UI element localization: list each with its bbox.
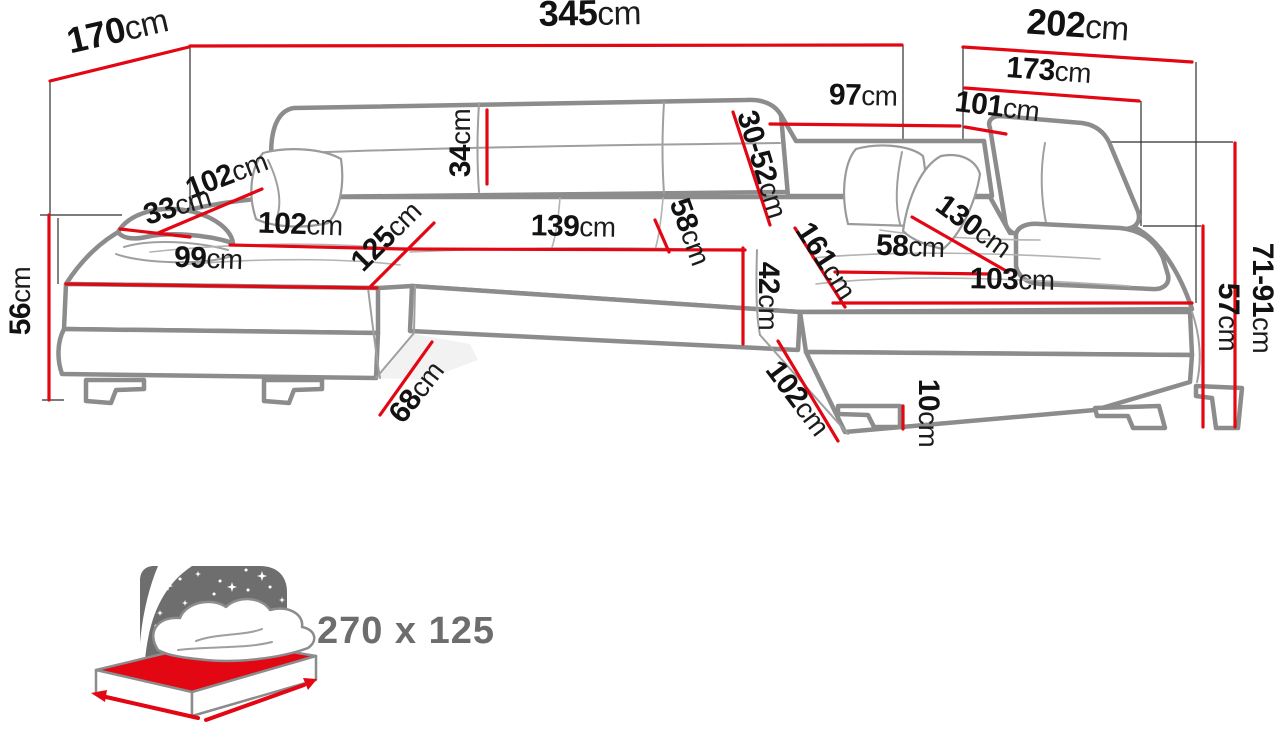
dim-unit: cm <box>445 109 476 145</box>
dim-unit: cm <box>579 211 616 243</box>
dim-unit: cm <box>753 294 784 330</box>
dim-label-backrest-cushion-height: 34cm <box>444 109 477 178</box>
dim-label-right-seat-depth: 58cm <box>875 229 945 264</box>
dim-unit: cm <box>913 411 944 447</box>
dim-unit: cm <box>908 231 945 263</box>
dim-value: 97 <box>829 78 862 112</box>
dim-value: 34 <box>444 144 477 177</box>
dim-line-back-section-width <box>770 124 960 126</box>
dim-unit: cm <box>1018 264 1055 296</box>
dim-label-leg-height: 10cm <box>912 379 945 448</box>
dim-unit: cm <box>206 243 243 275</box>
right-chaise-front <box>800 312 1192 355</box>
dim-value: 10 <box>912 379 945 411</box>
dim-label-seat-height: 42cm <box>752 262 785 331</box>
width-arrow-head-icon <box>91 690 107 702</box>
dim-label-left-side-height: 56cm <box>4 267 37 336</box>
dim-line-total-width <box>190 45 902 46</box>
foot <box>86 380 144 403</box>
left-chaise-front <box>64 284 378 333</box>
dim-unit: cm <box>1001 92 1041 127</box>
dim-value: 139 <box>531 209 580 243</box>
dim-unit: cm <box>1084 9 1130 49</box>
dim-label-back-section-width: 97cm <box>829 78 898 112</box>
left-chaise-base <box>58 329 378 378</box>
sleeping-area-icon: 270 x 125 <box>91 566 495 720</box>
dim-label-back-height-range: 71-91cm <box>1246 243 1279 353</box>
dim-unit: cm <box>1213 315 1244 351</box>
dim-unit: cm <box>1247 317 1278 353</box>
bed-icon <box>91 599 317 720</box>
dim-unit: cm <box>861 80 898 112</box>
dim-unit: cm <box>1054 55 1092 88</box>
sofa-backrest <box>271 100 790 197</box>
dim-label-right-inner-depth: 173cm <box>1005 51 1092 90</box>
dim-label-left-chaise-front-width: 99cm <box>173 241 243 276</box>
dim-label-middle-seat-width: 139cm <box>531 209 616 243</box>
dim-value: 99 <box>173 241 207 275</box>
dim-label-left-seat-length: 102cm <box>257 207 343 243</box>
dim-label-right-chaise-front-width: 103cm <box>970 262 1055 296</box>
dim-value: 202 <box>1025 1 1086 46</box>
dimension-diagram: 170cm 345cm 202cm 173cm 97cm 101cm 34cm … <box>0 0 1280 729</box>
diagram-canvas: 170cm 345cm 202cm 173cm 97cm 101cm 34cm … <box>0 0 1280 729</box>
foot <box>264 380 322 403</box>
dim-value: 345 <box>538 0 598 34</box>
dim-value: 42 <box>752 262 785 294</box>
dim-value: 58 <box>875 229 909 263</box>
dim-label-total-width: 345cm <box>538 0 641 34</box>
dim-unit: cm <box>306 209 343 241</box>
dim-line-right-seat-depth <box>835 272 990 274</box>
dim-unit: cm <box>121 2 172 48</box>
dim-unit: cm <box>597 0 641 33</box>
dim-value: 57 <box>1212 283 1245 315</box>
dim-value: 170 <box>63 8 129 61</box>
dim-label-right-side-depth: 202cm <box>1025 1 1130 49</box>
dim-value: 71-91 <box>1246 243 1279 317</box>
dim-value: 173 <box>1005 51 1056 87</box>
right-headrest <box>989 116 1139 234</box>
foot <box>1095 406 1165 428</box>
dim-value: 102 <box>257 207 307 242</box>
dim-label-left-side-depth: 170cm <box>63 0 172 61</box>
dim-value: 56 <box>4 303 37 335</box>
dim-unit: cm <box>5 267 36 303</box>
dim-label-armrest-height: 57cm <box>1212 283 1245 352</box>
sleeping-area-label: 270 x 125 <box>317 610 495 652</box>
dim-value: 101 <box>953 85 1005 124</box>
dim-value: 103 <box>970 262 1019 296</box>
